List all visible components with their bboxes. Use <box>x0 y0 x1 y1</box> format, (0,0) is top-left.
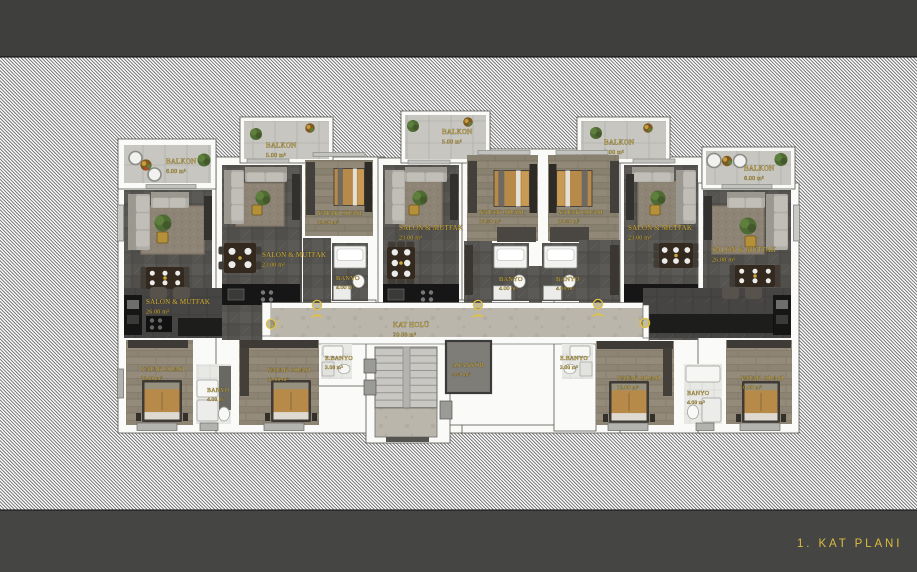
svg-text:6: 6 <box>269 320 273 329</box>
svg-text:6.00 m²: 6.00 m² <box>166 169 186 175</box>
svg-text:E.BANYO: E.BANYO <box>325 356 353 362</box>
svg-text:YATAK ODASI: YATAK ODASI <box>558 209 603 216</box>
svg-text:BALKON: BALKON <box>166 158 196 166</box>
svg-text:23.00 m²: 23.00 m² <box>262 262 285 268</box>
svg-text:23.00 m²: 23.00 m² <box>628 235 651 241</box>
svg-text:YATAK ODASI: YATAK ODASI <box>740 375 784 382</box>
svg-text:SALON & MUTFAK: SALON & MUTFAK <box>712 246 776 254</box>
svg-text:20.00 m²: 20.00 m² <box>393 332 416 338</box>
svg-text:YATAK ODASI: YATAK ODASI <box>479 209 524 216</box>
svg-text:BANYO: BANYO <box>336 275 360 282</box>
svg-text:4.00 m²: 4.00 m² <box>556 286 575 292</box>
svg-text:KAT HOLÜ: KAT HOLÜ <box>393 321 429 329</box>
svg-text:10: 10 <box>641 319 649 328</box>
svg-text:3.00 m²: 3.00 m² <box>560 365 578 371</box>
svg-text:4.00 m²: 4.00 m² <box>499 286 518 292</box>
svg-text:YATAK ODASI: YATAK ODASI <box>317 210 362 217</box>
svg-text:ASANSÖR: ASANSÖR <box>452 362 485 369</box>
svg-text:SALON & MUTFAK: SALON & MUTFAK <box>146 298 210 306</box>
svg-text:BANYO: BANYO <box>207 388 230 394</box>
svg-text:BALKON: BALKON <box>604 139 634 147</box>
svg-text:10.50 m²: 10.50 m² <box>317 220 339 226</box>
svg-text:10.50 m²: 10.50 m² <box>558 219 580 225</box>
svg-text:BALKON: BALKON <box>266 142 296 150</box>
svg-text:9: 9 <box>596 300 600 309</box>
svg-text:5.00 m²: 5.00 m² <box>442 139 462 145</box>
svg-text:BANYO: BANYO <box>499 276 523 283</box>
svg-text:10.00 m²: 10.00 m² <box>740 385 762 391</box>
svg-text:26.00 m²: 26.00 m² <box>146 309 169 315</box>
svg-text:4.00 m²: 4.00 m² <box>207 397 225 403</box>
svg-text:12.00 m²: 12.00 m² <box>617 385 639 391</box>
svg-text:12.00 m²: 12.00 m² <box>267 377 289 383</box>
svg-text:YATAK ODASI: YATAK ODASI <box>141 366 185 373</box>
svg-text:E.BANYO: E.BANYO <box>560 356 588 362</box>
svg-text:4.00 m²: 4.00 m² <box>336 285 355 291</box>
svg-text:SALON & MUTFAK: SALON & MUTFAK <box>262 251 326 259</box>
svg-text:4.00 m²: 4.00 m² <box>687 400 705 406</box>
svg-text:BANYO: BANYO <box>687 391 710 397</box>
svg-text:5.00 m²: 5.00 m² <box>266 153 286 159</box>
svg-text:YATAK ODASI: YATAK ODASI <box>617 375 661 382</box>
svg-text:YATAK ODASI: YATAK ODASI <box>267 367 311 374</box>
svg-text:26.00 m²: 26.00 m² <box>712 257 735 263</box>
svg-text:8: 8 <box>476 301 480 310</box>
svg-text:12.00 m²: 12.00 m² <box>141 376 163 382</box>
svg-text:1. KAT PLANI: 1. KAT PLANI <box>797 538 902 550</box>
svg-text:6.00 m²: 6.00 m² <box>744 176 764 182</box>
svg-text:BALKON: BALKON <box>744 165 774 173</box>
svg-text:3.00 m²: 3.00 m² <box>325 365 343 371</box>
svg-text:SALON & MUTFAK: SALON & MUTFAK <box>399 224 463 232</box>
svg-text:BANYO: BANYO <box>556 276 580 283</box>
svg-text:BALKON: BALKON <box>442 128 472 136</box>
svg-text:SALON & MUTFAK: SALON & MUTFAK <box>628 224 692 232</box>
svg-text:7: 7 <box>315 301 319 310</box>
svg-text:10.50 m²: 10.50 m² <box>479 219 501 225</box>
svg-text:4.50 m²: 4.50 m² <box>452 372 471 378</box>
svg-text:23.00 m²: 23.00 m² <box>399 235 422 241</box>
